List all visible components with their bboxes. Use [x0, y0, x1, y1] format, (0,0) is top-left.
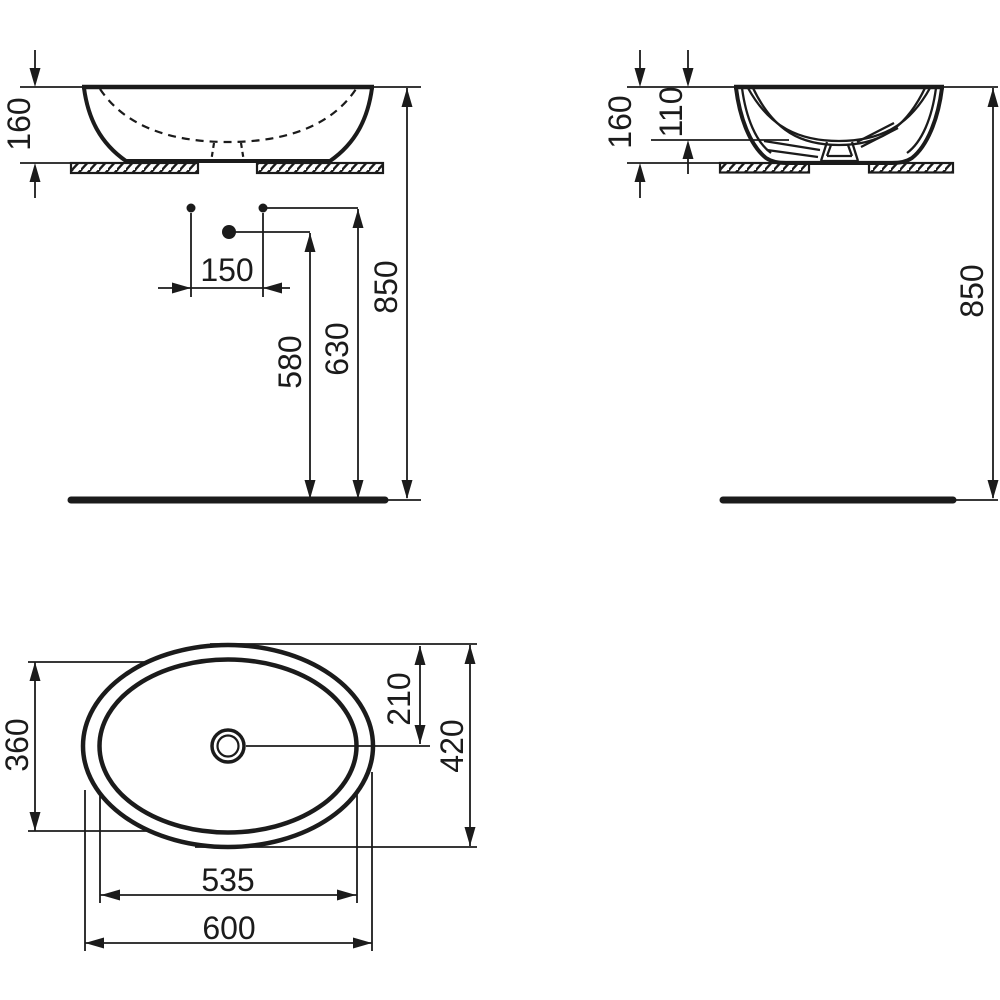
dim-bowl-width: 360 [0, 662, 41, 831]
arrowhead-up [305, 233, 316, 252]
arrowhead-up [30, 163, 41, 182]
dim-label-580: 580 [272, 335, 308, 388]
arrowhead-right [353, 938, 372, 949]
arrowhead-up [415, 646, 426, 665]
arrowhead-up [402, 88, 413, 107]
dim-rim-height-side: 850 [954, 88, 998, 499]
arrowhead-down [353, 480, 364, 499]
arrowhead-down [988, 480, 999, 499]
side-view: 160 110 850 [602, 50, 998, 500]
top-view: 360 210 420 535 600 [0, 644, 477, 951]
dim-label-150: 150 [200, 252, 253, 288]
countertop-hatch-left [71, 163, 198, 173]
arrowhead-left [263, 283, 282, 294]
arrowhead-down [465, 827, 476, 846]
dim-overall-width: 420 [434, 645, 475, 846]
arrowhead-down [415, 725, 426, 744]
countertop-hatch-right [257, 163, 383, 173]
dim-label-850-front: 850 [368, 260, 404, 313]
supply-point-left [187, 204, 196, 213]
dim-label-160-side: 160 [602, 95, 638, 148]
dim-label-110: 110 [653, 86, 689, 137]
dim-label-630: 630 [319, 322, 355, 375]
basin-outline-front [84, 88, 372, 161]
arrowhead-down [305, 480, 316, 499]
dim-basin-height-front: 160 [1, 50, 40, 198]
dim-label-600: 600 [202, 910, 255, 946]
dim-tap-hole-spacing: 150 [158, 213, 290, 297]
dim-label-850-side: 850 [954, 264, 990, 317]
dim-basin-height-side: 160 [602, 50, 645, 198]
arrowhead-up [353, 209, 364, 228]
dim-label-160-front: 160 [1, 97, 37, 150]
dim-center-offset: 210 [381, 646, 425, 744]
arrowhead-right [337, 890, 356, 901]
arrowhead-down [30, 68, 41, 87]
countertop-hatch-right-side [869, 163, 953, 173]
countertop-hatch-left-side [720, 163, 809, 173]
basin-section-outline [736, 88, 942, 163]
arrowhead-down [683, 68, 694, 87]
arrowhead-up [988, 88, 999, 107]
dim-rim-height-front: 850 [368, 88, 412, 499]
dim-bowl-length: 535 [100, 862, 357, 900]
dim-label-360: 360 [0, 718, 35, 771]
arrowhead-right [172, 283, 191, 294]
arrowhead-down [635, 68, 646, 87]
dim-label-420: 420 [434, 719, 470, 772]
washbasin-technical-drawing: 160 150 580 630 [0, 0, 1000, 1000]
arrowhead-left [101, 890, 120, 901]
dim-overall-length: 600 [85, 910, 372, 948]
arrowhead-down [30, 812, 41, 831]
arrowhead-up [465, 645, 476, 664]
arrowhead-down [402, 480, 413, 499]
dim-label-535: 535 [201, 862, 254, 898]
arrowhead-left [85, 938, 104, 949]
arrowhead-up [635, 163, 646, 182]
front-view: 160 150 580 630 [1, 50, 421, 500]
arrowhead-up [30, 662, 41, 681]
dim-label-210: 210 [381, 672, 417, 725]
arrowhead-up [683, 140, 694, 159]
